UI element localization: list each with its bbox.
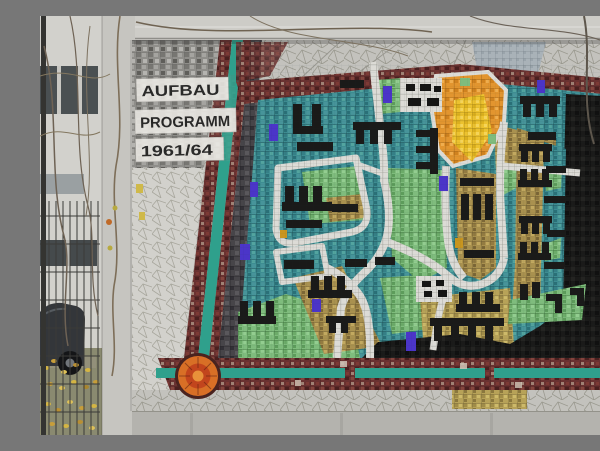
background-left (40, 16, 102, 435)
city-plan-map (238, 62, 600, 358)
dry-leaf-on-pillar (106, 219, 112, 225)
frame-bottom-base (132, 411, 600, 435)
stripe-teal-bottom (156, 368, 600, 378)
gold-strip-bottom (452, 390, 527, 409)
bottom-border-band (132, 353, 600, 411)
facade-window-mid (40, 174, 84, 194)
orange-circle-motif (175, 353, 221, 399)
photo-canvas: AUFBAU PROGRAMM 1961/64 (40, 16, 600, 435)
mosaic-wall-photo: AUFBAU PROGRAMM 1961/64 (40, 16, 600, 435)
mosaic-panel: AUFBAU PROGRAMM 1961/64 (132, 40, 600, 411)
fence-post (41, 16, 46, 435)
wire-fence (40, 201, 100, 435)
sign: AUFBAU PROGRAMM 1961/64 (134, 75, 237, 163)
